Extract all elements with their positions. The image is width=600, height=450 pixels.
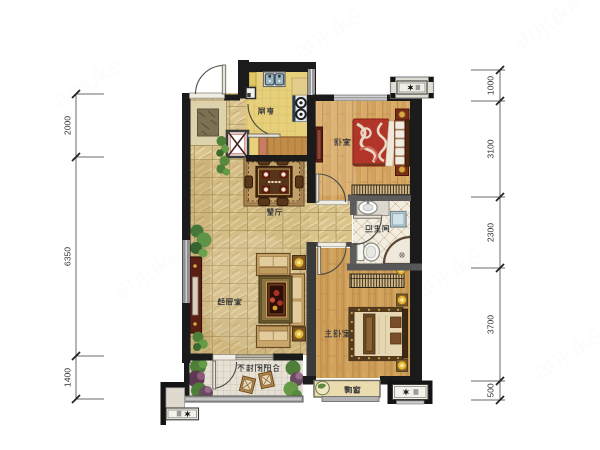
svg-text:2000: 2000 — [63, 116, 73, 135]
svg-text:2300: 2300 — [486, 223, 496, 242]
svg-text:6350: 6350 — [63, 247, 73, 266]
svg-text:anjuke: anjuke — [527, 319, 600, 385]
svg-text:3100: 3100 — [486, 139, 496, 158]
svg-text:anjuke: anjuke — [507, 0, 588, 55]
svg-text:1000: 1000 — [486, 76, 496, 95]
svg-text:1400: 1400 — [63, 368, 73, 387]
svg-text:anjuke: anjuke — [47, 49, 128, 115]
svg-text:3700: 3700 — [486, 315, 496, 334]
svg-text:anjuke: anjuke — [107, 239, 188, 305]
svg-text:anjuke: anjuke — [287, 0, 368, 65]
svg-text:500: 500 — [486, 383, 496, 398]
